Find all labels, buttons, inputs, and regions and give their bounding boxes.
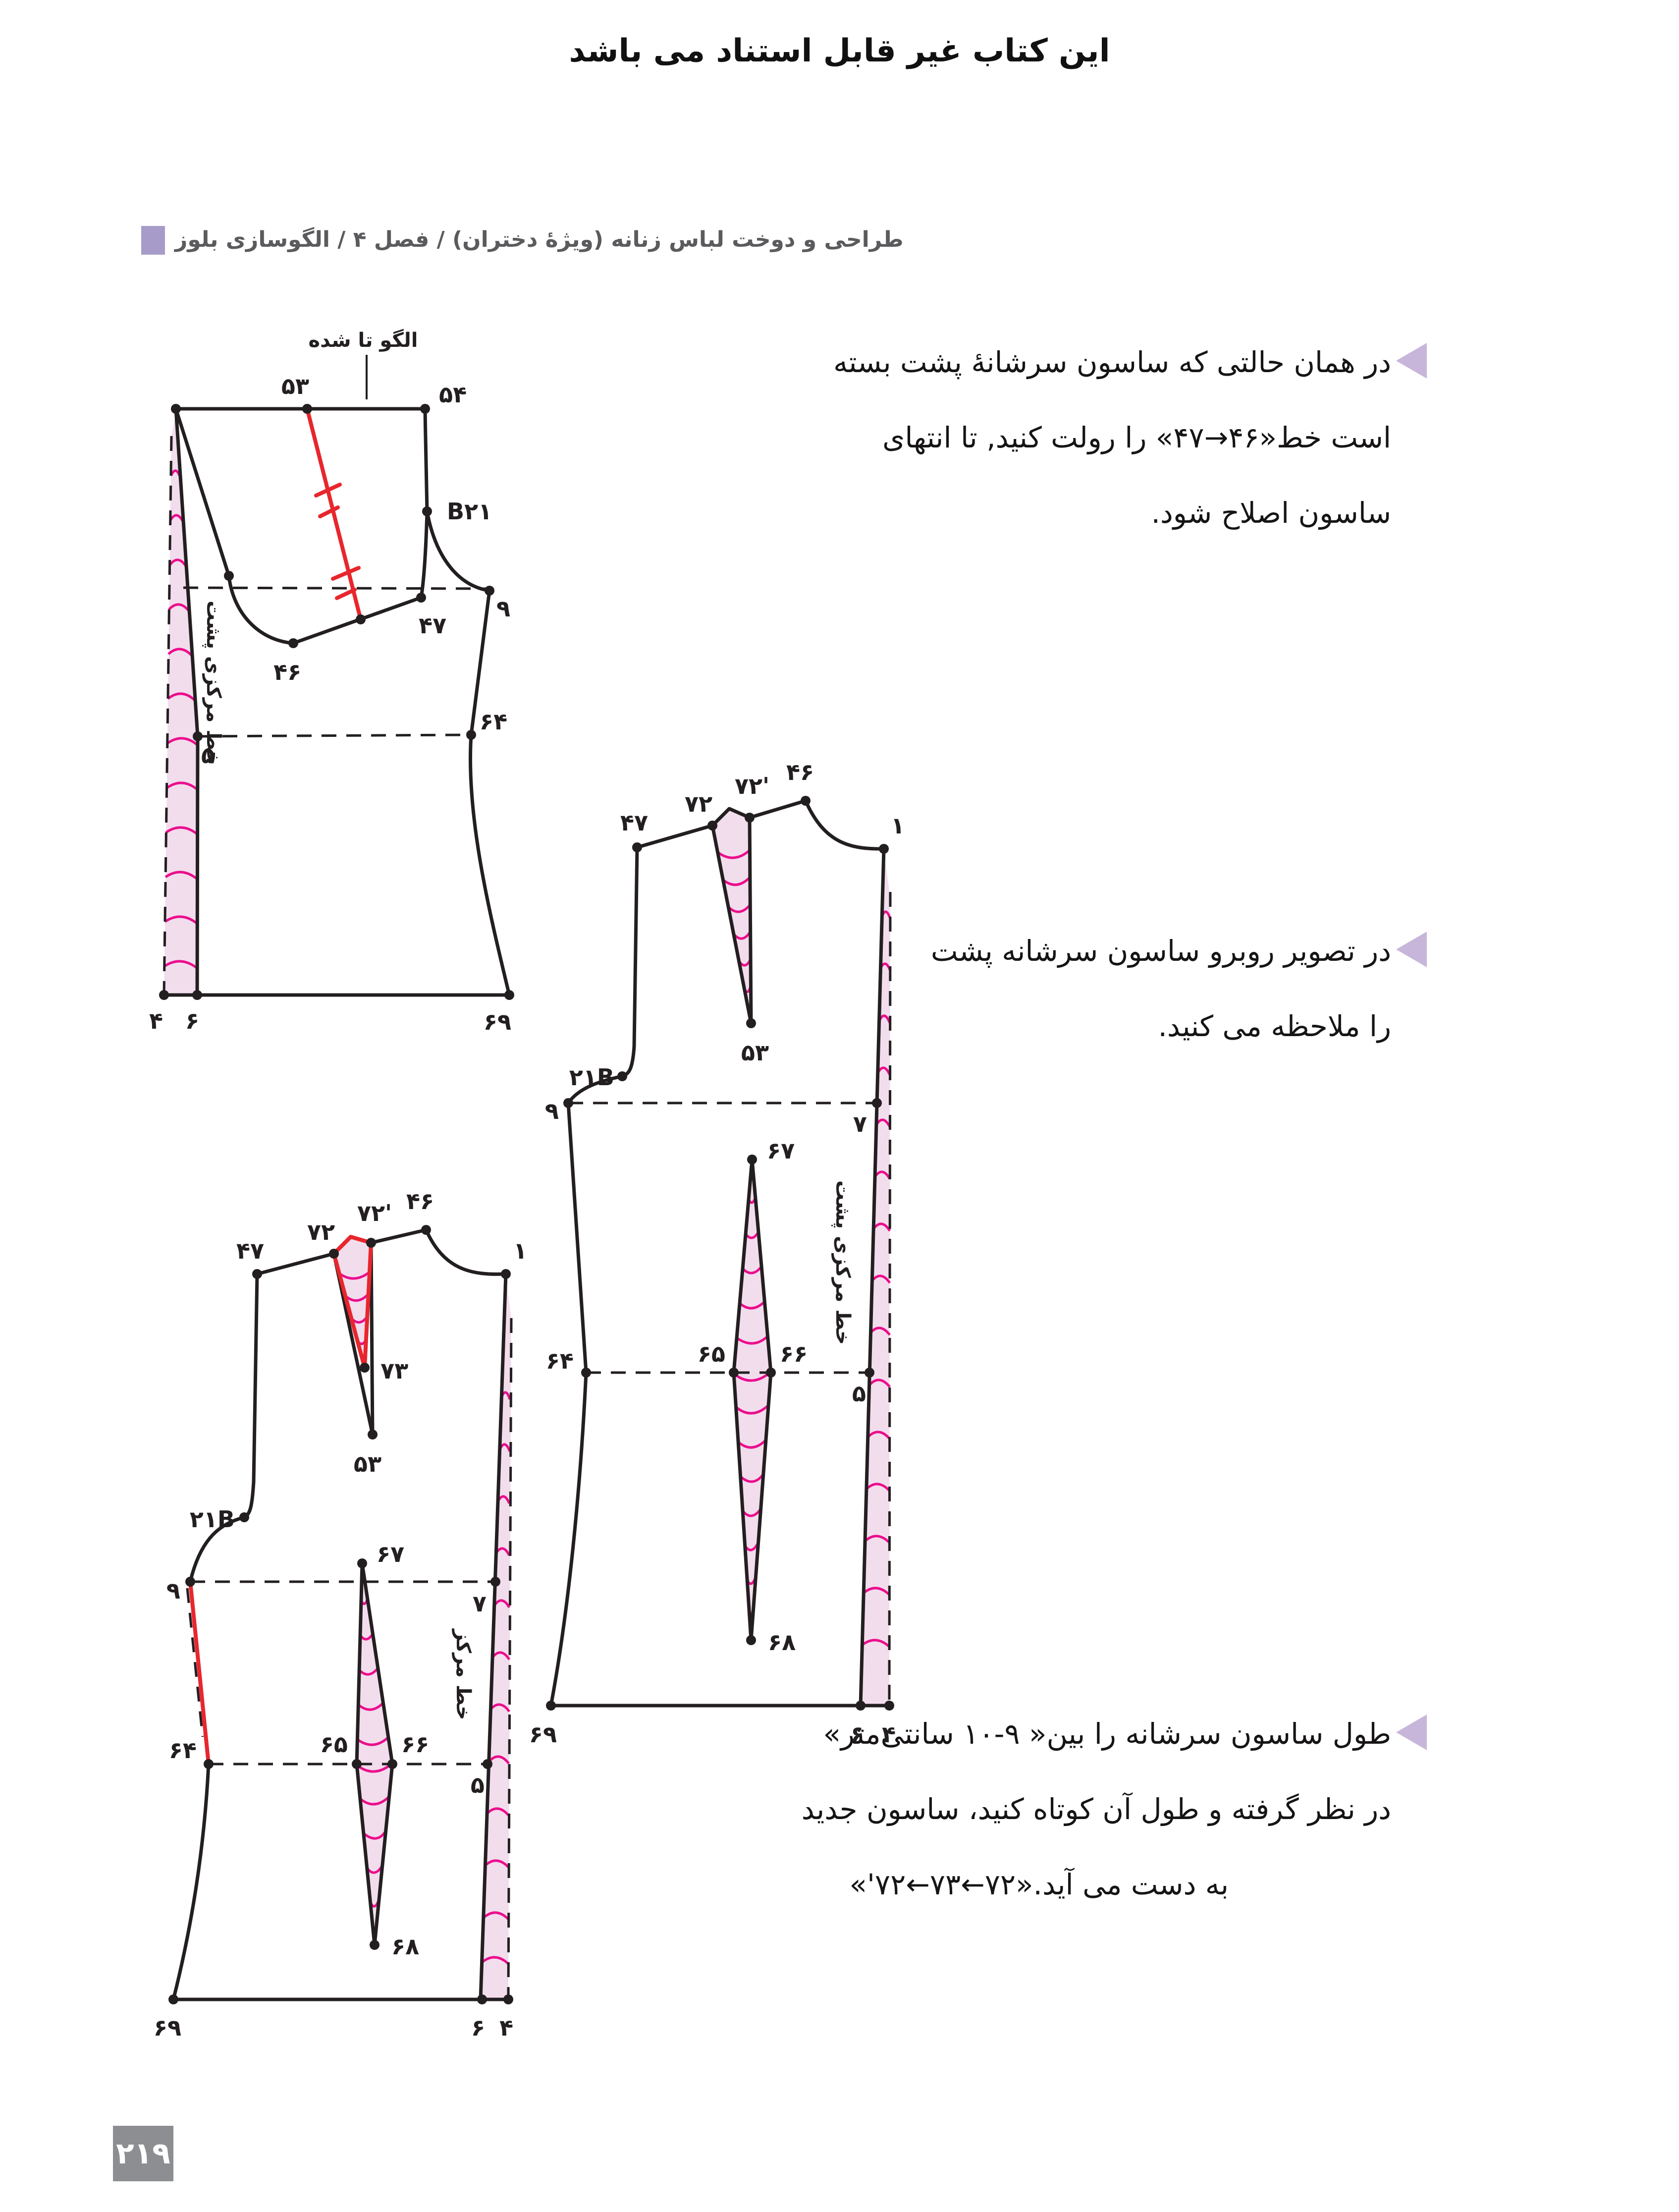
- d3-label-9: ۹: [166, 1577, 180, 1604]
- d1-label-53: ۵۳: [281, 373, 309, 399]
- d1-label-4: ۴: [149, 1007, 163, 1034]
- page-number: ۲۱۹: [116, 2136, 170, 2171]
- book-page: { "page": { "disclaimer": "این کتاب غیر …: [0, 0, 1679, 2212]
- d2-label-66: ۶۶: [780, 1340, 808, 1367]
- d3-label-5: ۵: [471, 1771, 485, 1798]
- d2-label-21B: ۲۱B: [569, 1064, 614, 1091]
- d2-label-1: ۱: [891, 812, 905, 839]
- d1-fold-label: الگو تا شده: [308, 329, 418, 352]
- d3-point-dots: [168, 1225, 513, 2004]
- d3-label-65: ۶۵: [320, 1731, 348, 1758]
- d3-red-lines: [190, 1237, 371, 1764]
- d3-outline: [173, 1230, 508, 1999]
- d3-label-64: ۶۴: [169, 1737, 197, 1764]
- page-number-badge: ۲۱۹: [113, 2126, 173, 2181]
- d3-label-7: ۷: [473, 1590, 487, 1617]
- d2-label-72: ۷۲: [685, 790, 712, 817]
- d2-label-7: ۷: [853, 1110, 867, 1137]
- d2-label-65: ۶۵: [698, 1340, 725, 1367]
- d2-label-6: ۶: [850, 1721, 864, 1748]
- d2-label-69: ۶۹: [529, 1721, 557, 1748]
- d3-label-72p: ۷۲': [357, 1200, 392, 1226]
- pattern-diagrams: الگو تا شده ۵۳ ۵۴ B۲۱ ۹ ۴۷ ۴۶ ۵ ۶۴ ۴ ۶ ۶…: [0, 0, 1679, 2212]
- d3-label-47: ۴۷: [236, 1237, 264, 1264]
- d1-label-B21: B۲۱: [447, 498, 492, 525]
- d3-label-73: ۷۳: [380, 1357, 408, 1384]
- d3-label-53: ۵۳: [354, 1450, 381, 1477]
- d2-waist-dart-fill: [734, 1160, 771, 1640]
- diagram-back-shortened-dart: ۴۷ ۷۲ ۷۲' ۴۶ ۱ ۷۳ ۵۳ ۲۱B ۹ ۷ ۶۷ ۶۴ ۶۵ ۶۶…: [154, 1188, 527, 2041]
- d3-label-67: ۶۷: [377, 1541, 404, 1567]
- d2-label-4: ۴: [882, 1721, 896, 1748]
- d1-label-6: ۶: [185, 1007, 199, 1034]
- d3-label-68: ۶۸: [391, 1933, 419, 1960]
- d2-label-53: ۵۳: [741, 1039, 769, 1066]
- d1-label-9: ۹: [496, 595, 510, 622]
- d3-label-72: ۷۲: [307, 1218, 335, 1245]
- d3-label-4: ۴: [499, 2014, 513, 2041]
- d2-label-9: ۹: [545, 1098, 559, 1124]
- d3-label-66: ۶۶: [401, 1731, 429, 1758]
- d1-centerback-label: خط مرکزی پشت: [202, 601, 225, 765]
- d2-label-67: ۶۷: [767, 1137, 795, 1164]
- d1-label-69: ۶۹: [484, 1008, 511, 1035]
- diagram-back-shoulder-dart: ۴۷ ۷۲ ۷۲' ۴۶ ۱ ۵۳ ۲۱B ۹ ۷ ۶۷ ۶۴ ۶۵ ۶۶ ۵ …: [529, 759, 905, 1748]
- d2-label-72p: ۷۲': [735, 773, 769, 799]
- d2-centerback-label: خط مرکزی پشت: [831, 1180, 854, 1345]
- d2-label-47: ۴۷: [620, 809, 648, 836]
- d3-label-1: ۱: [513, 1237, 527, 1264]
- d2-label-46: ۴۶: [786, 759, 814, 785]
- diagram-back-folded: الگو تا شده ۵۳ ۵۴ B۲۱ ۹ ۴۷ ۴۶ ۵ ۶۴ ۴ ۶ ۶…: [149, 329, 514, 1035]
- d3-centerback-label: خط مرکز: [452, 1628, 475, 1720]
- d2-label-5: ۵: [852, 1380, 866, 1407]
- d1-label-47: ۴۷: [419, 612, 446, 639]
- d2-label-68: ۶۸: [768, 1629, 796, 1656]
- d1-label-64: ۶۴: [480, 708, 507, 735]
- d1-label-54: ۵۴: [439, 381, 467, 408]
- d3-label-6: ۶: [471, 2014, 485, 2041]
- d3-label-21B: ۲۱B: [190, 1506, 235, 1533]
- d3-label-46: ۴۶: [406, 1188, 434, 1215]
- d1-label-46: ۴۶: [273, 659, 301, 685]
- d2-label-64: ۶۴: [546, 1347, 574, 1374]
- d3-label-69: ۶۹: [154, 2014, 181, 2041]
